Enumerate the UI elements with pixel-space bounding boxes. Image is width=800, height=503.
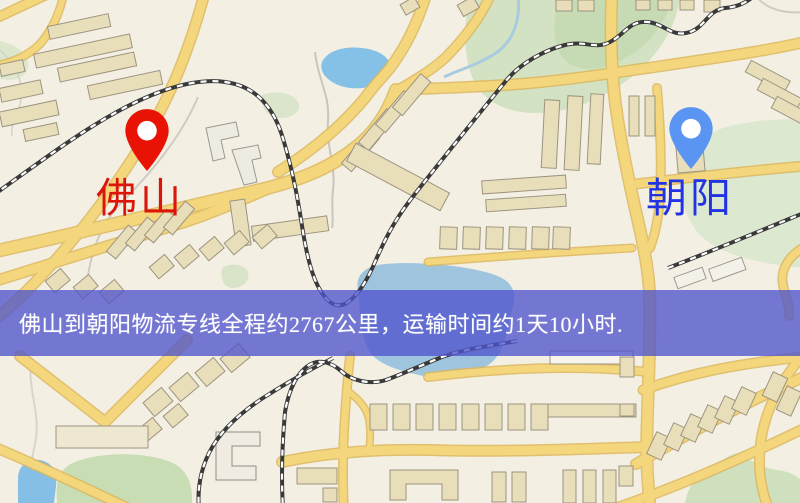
destination-marker[interactable] (666, 105, 716, 171)
destination-pin-hole (681, 119, 701, 139)
map-canvas[interactable] (0, 0, 800, 503)
origin-pin-hole (137, 121, 157, 141)
origin-marker[interactable] (122, 107, 172, 173)
info-banner: 佛山到朝阳物流专线全程约2767公里，运输时间约1天10小时. (0, 290, 800, 356)
destination-label: 朝阳 (630, 178, 750, 219)
origin-label: 佛山 (80, 178, 200, 219)
logistics-map-page: 佛山 朝阳 佛山到朝阳物流专线全程约2767公里，运输时间约1天10小时. (0, 0, 800, 503)
banner-text: 佛山到朝阳物流专线全程约2767公里，运输时间约1天10小时. (0, 307, 623, 339)
